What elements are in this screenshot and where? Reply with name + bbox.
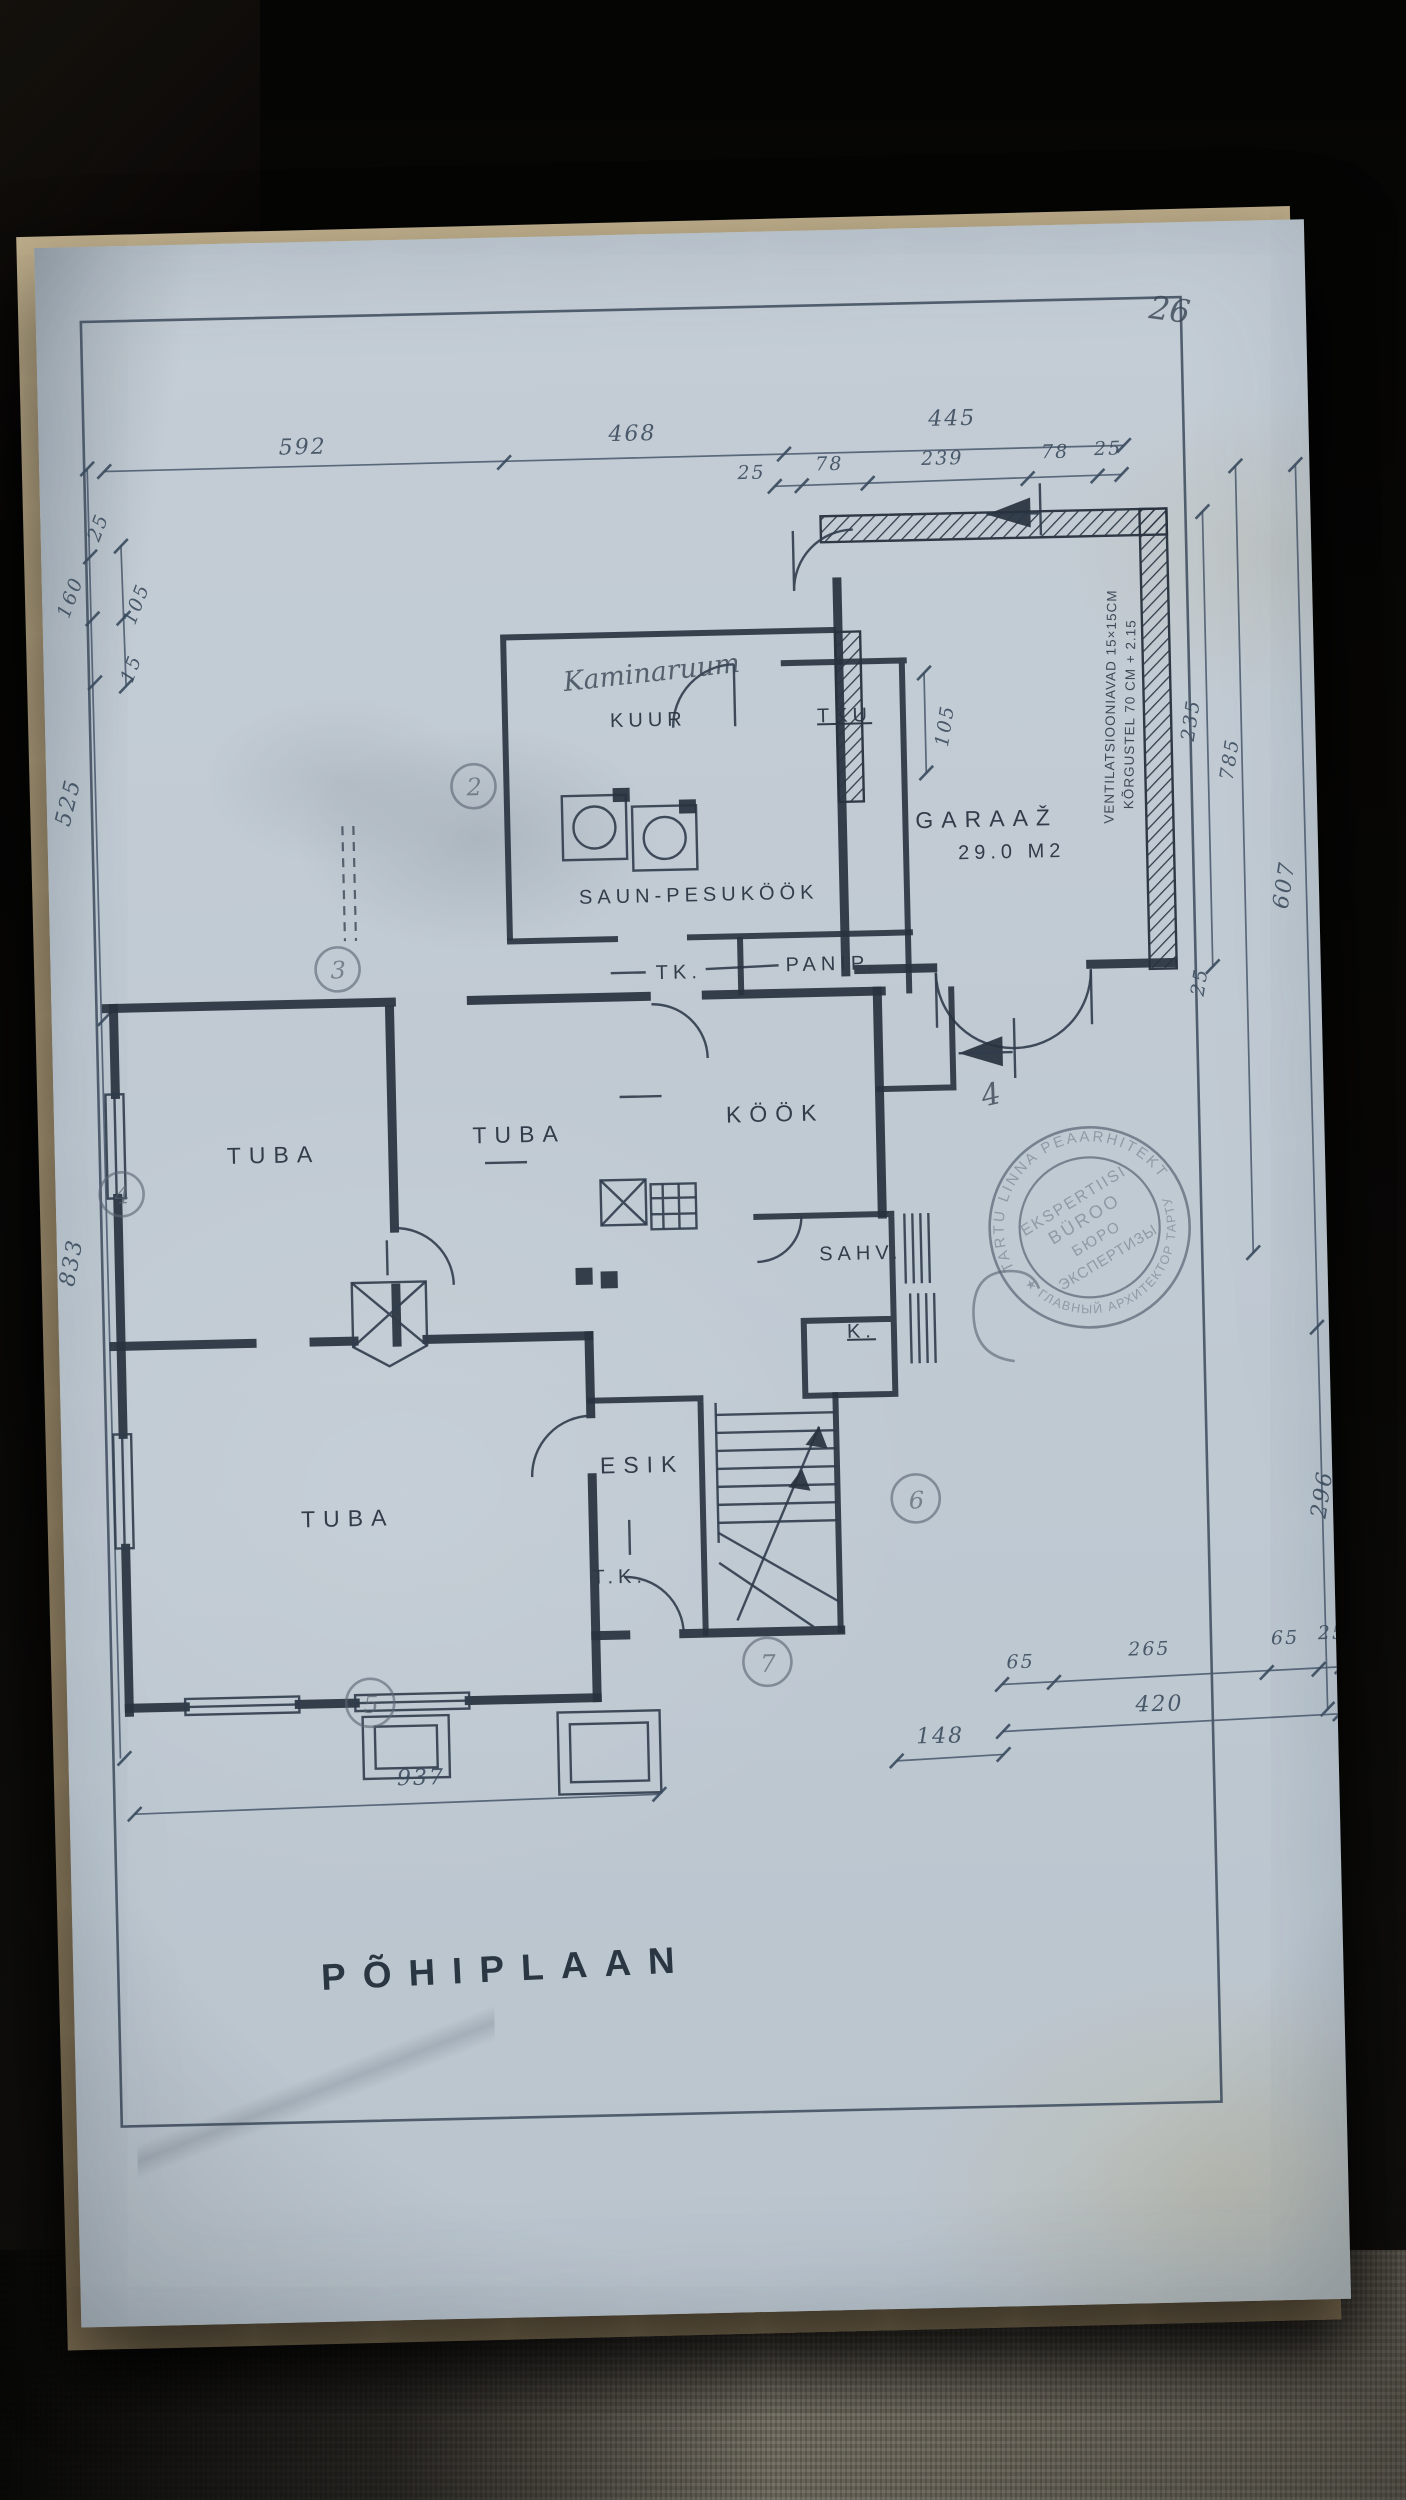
main-house-walls: SAHV. K. ESIK T.K. — [102, 931, 969, 1804]
dim-sub-78b: 78 — [1041, 441, 1070, 464]
door-kook — [651, 1003, 707, 1059]
floor-plan-drawing: 26 592 468 445 25 78 239 78 25 — [34, 219, 1351, 2327]
page-number: 26 — [1146, 288, 1192, 331]
drawing-title: PÕHIPLAAN — [320, 1938, 693, 1998]
room-label-tk2: T.K. — [592, 1566, 647, 1589]
right-dimension-column: 235 785 25 607 296 — [1170, 457, 1344, 1719]
architect-stamp: TARTU LINNA PEAARHITEKT ★ ГЛАВНЫЙ АРХИТЕ… — [952, 1090, 1227, 1365]
axis-bubble-3: 3 — [330, 956, 346, 984]
room-label-saun: SAUN-PESUKÖÖK — [579, 881, 819, 908]
room-label-sahv: SAHV. — [819, 1242, 903, 1266]
room-label-tku: TKU — [817, 704, 872, 727]
top-dimension-row: 592 468 445 25 78 239 78 25 — [96, 402, 1132, 508]
dim-br-65a: 65 — [1006, 1651, 1035, 1674]
axis-bubble-7: 7 — [760, 1650, 777, 1678]
dim-top-592: 592 — [278, 434, 327, 460]
dim-sub-25b: 25 — [1093, 437, 1123, 460]
room-label-tuba3: TUBA — [301, 1504, 395, 1532]
room-label-tuba2: TUBA — [472, 1120, 566, 1148]
garage-top-wall — [820, 508, 1167, 542]
room-label-k: K. — [847, 1320, 876, 1343]
axis-bubble-5: 5 — [363, 1691, 379, 1719]
dim-right-785: 785 — [1216, 737, 1244, 782]
dim-sub-239: 239 — [920, 447, 964, 470]
axis-bubble-4: 4 — [113, 1181, 130, 1209]
chimney — [352, 1281, 428, 1367]
bottom-dimension-rows: 937 65 265 65 25 420 148 — [124, 1622, 1351, 1822]
dim-left-833: 833 — [55, 1237, 88, 1289]
dim-tku-105: 105 — [931, 703, 959, 748]
garage-right-wall — [1139, 508, 1176, 968]
room-label-kuur: KUUR — [610, 708, 687, 732]
window-right-1 — [904, 1213, 930, 1284]
window-right-2 — [910, 1293, 936, 1364]
kuur-block: Kaminaruum KUUR TKU 105 SAUN-PESUKÖÖK — [338, 627, 964, 945]
dim-right-296: 296 — [1306, 1469, 1338, 1521]
dim-bottom-937: 937 — [397, 1765, 446, 1791]
room-label-tk: TK. — [656, 961, 703, 984]
dim-br-65b: 65 — [1271, 1627, 1300, 1650]
room-label-garage-area: 29.0 M2 — [958, 840, 1066, 864]
room-label-garage: GARAAŽ — [915, 804, 1058, 833]
section-mark: 4 — [977, 1076, 1005, 1115]
dim-left-525: 525 — [51, 776, 87, 829]
dim-right-25: 25 — [1186, 966, 1212, 998]
photo-of-blueprint: 26 592 468 445 25 78 239 78 25 — [0, 0, 1406, 2500]
dim-right-607: 607 — [1269, 859, 1301, 910]
dim-top-468: 468 — [607, 421, 657, 447]
dim-right-235: 235 — [1177, 698, 1205, 744]
dim-br-148: 148 — [916, 1723, 965, 1749]
door-tuba1-tuba2 — [394, 1227, 453, 1286]
dim-left-105: 105 — [119, 580, 155, 627]
blueprint-paper: 26 592 468 445 25 78 239 78 25 — [34, 219, 1351, 2327]
tk-panip-strip: TK. PANIP. — [610, 937, 878, 995]
dim-left-15: 15 — [116, 652, 147, 686]
dim-br-265: 265 — [1127, 1638, 1171, 1661]
room-label-kaminaruum: Kaminaruum — [561, 648, 742, 698]
dim-br-25: 25 — [1317, 1622, 1347, 1645]
staircase — [716, 1400, 841, 1629]
room-label-esik: ESIK — [600, 1451, 685, 1479]
room-label-panip: PANIP. — [785, 952, 877, 976]
dim-left-25: 25 — [83, 510, 114, 545]
vent-note-line2: KÕRGUSTEL 70 CM + 2.15 — [1121, 619, 1138, 809]
axis-bubble-2: 2 — [465, 773, 482, 801]
door-esik-tuba3 — [531, 1416, 592, 1477]
dim-br-420: 420 — [1134, 1691, 1184, 1717]
room-label-kook: KÖÖK — [726, 1099, 825, 1127]
dim-sub-78a: 78 — [815, 453, 844, 476]
room-label-tuba1: TUBA — [227, 1141, 321, 1169]
vent-note-line1: VENTILATSIOONIAVAD 15×15CM — [1101, 589, 1119, 823]
axis-bubble-6: 6 — [908, 1486, 924, 1514]
door-sahv — [756, 1216, 802, 1262]
dim-left-160: 160 — [53, 574, 89, 621]
dim-sub-25a: 25 — [736, 462, 766, 485]
dim-top-445: 445 — [927, 406, 977, 432]
